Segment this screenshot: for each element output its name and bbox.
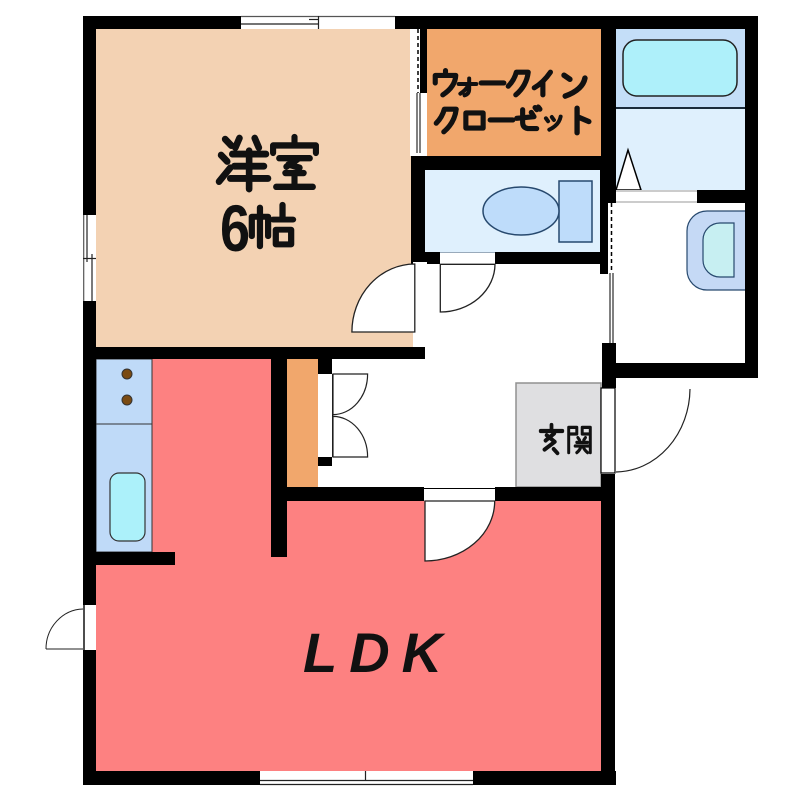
svg-text:LDK: LDK [303, 621, 454, 684]
svg-text:6: 6 [220, 191, 250, 265]
